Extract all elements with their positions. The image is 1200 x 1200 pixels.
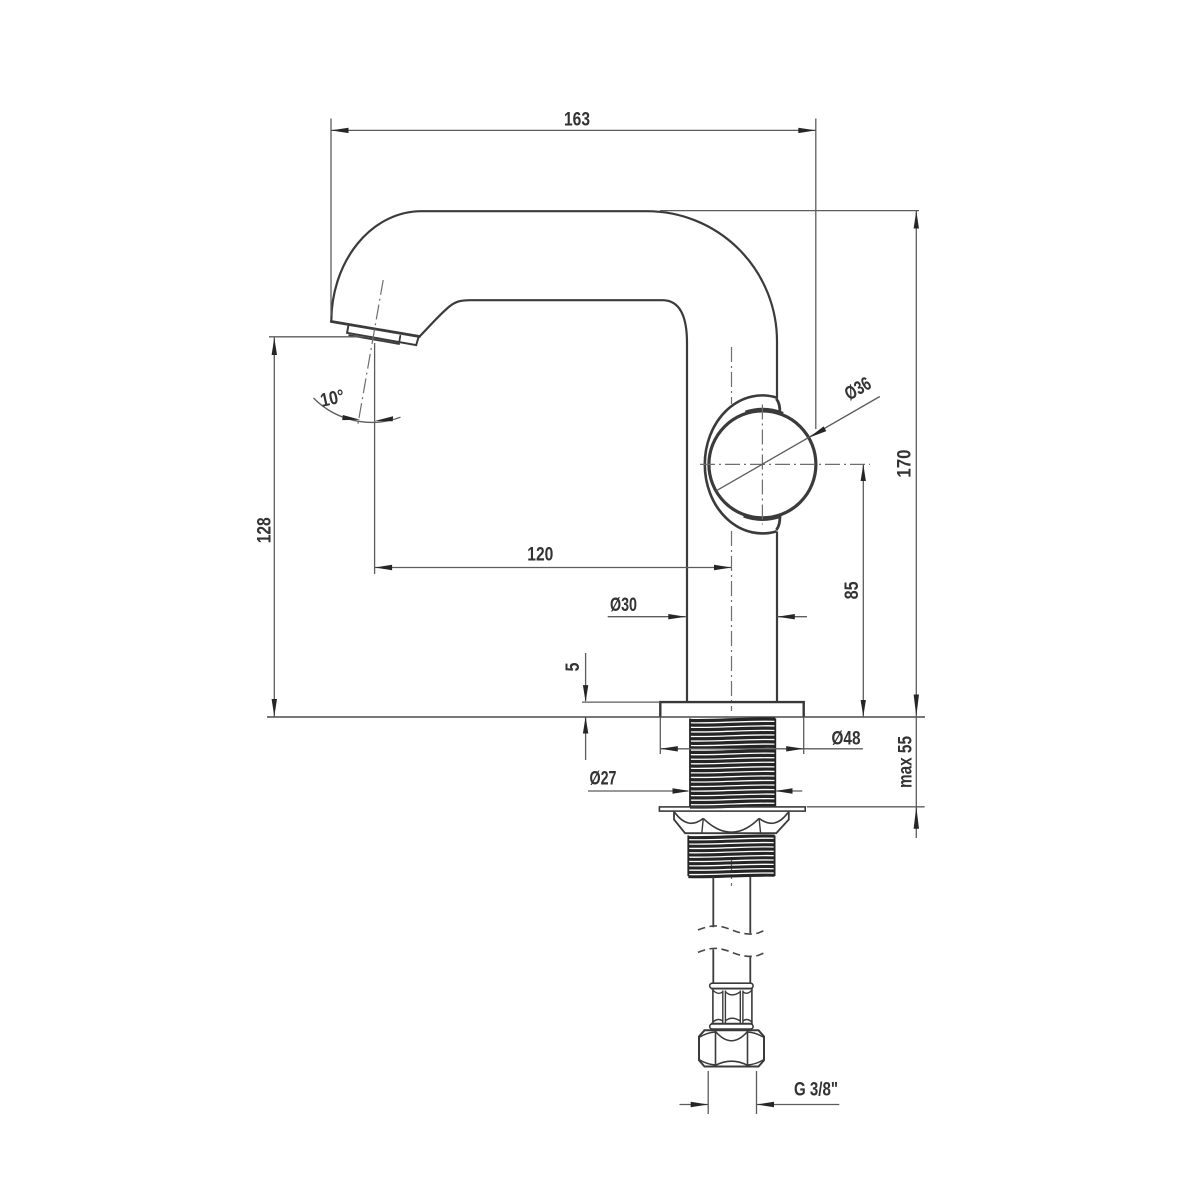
svg-text:Ø48: Ø48: [832, 729, 861, 750]
svg-text:170: 170: [895, 450, 916, 478]
svg-text:Ø27: Ø27: [590, 769, 617, 790]
svg-text:120: 120: [527, 545, 553, 566]
svg-text:163: 163: [564, 110, 590, 131]
svg-text:5: 5: [563, 662, 584, 671]
svg-text:G 3/8": G 3/8": [794, 1080, 838, 1101]
svg-text:128: 128: [254, 517, 275, 543]
svg-text:Ø30: Ø30: [610, 595, 637, 616]
svg-text:max 55: max 55: [895, 736, 916, 788]
svg-text:85: 85: [842, 581, 863, 599]
